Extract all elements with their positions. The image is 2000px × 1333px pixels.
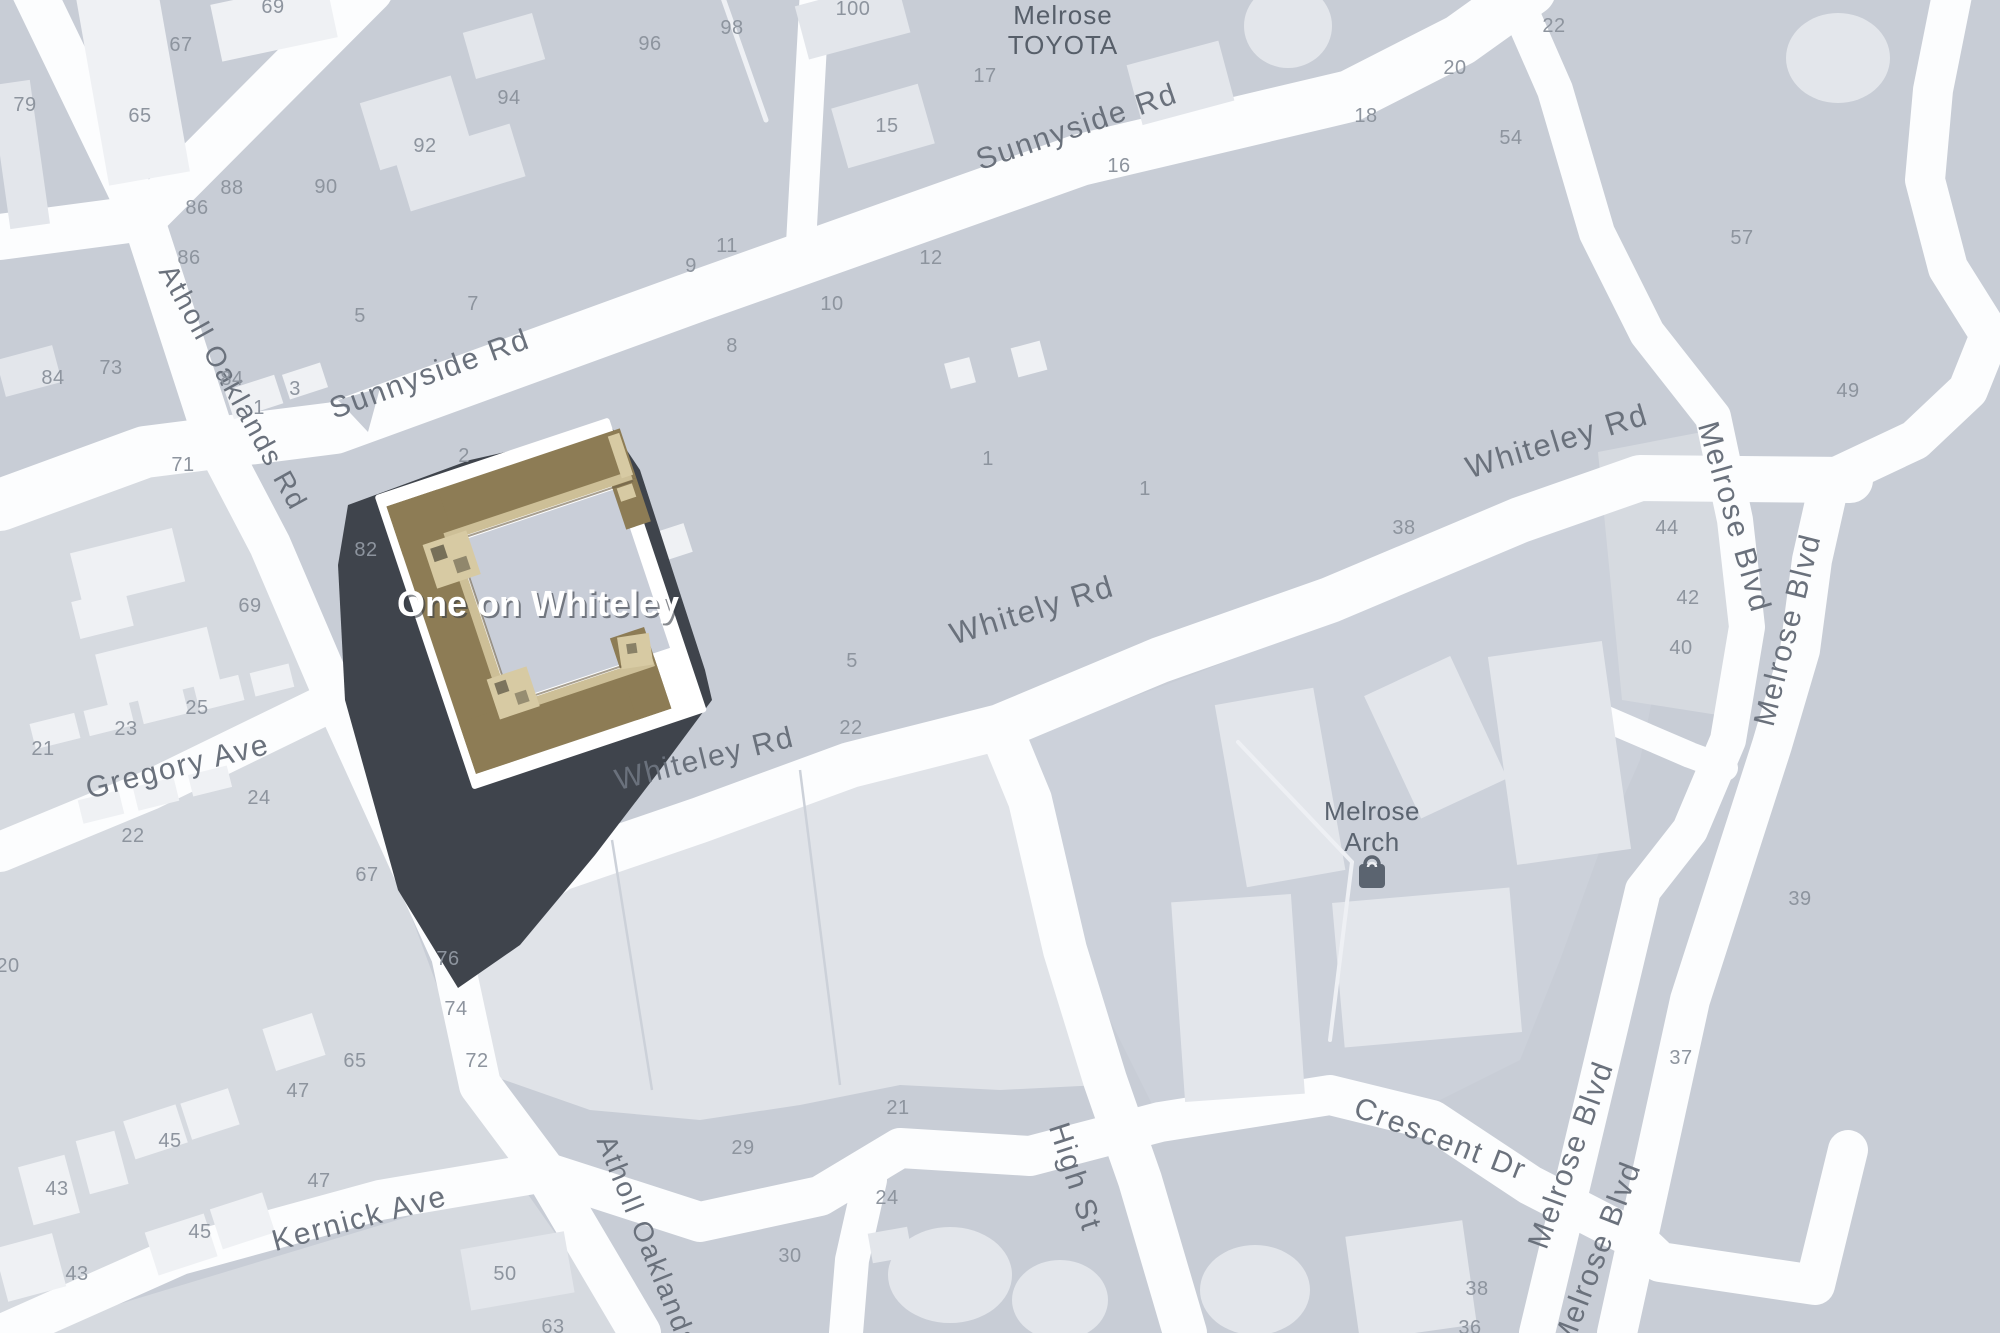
house-number-label: 67 (355, 864, 378, 886)
house-number-label: 86 (185, 197, 208, 219)
house-number-label: 43 (45, 1178, 68, 1200)
house-number-label: 43 (65, 1263, 88, 1285)
poi-line1: Melrose (1324, 796, 1420, 826)
house-number-label: 63 (541, 1316, 564, 1333)
house-number-label: 3 (289, 378, 301, 400)
house-number-label: 2 (458, 445, 470, 467)
house-number-label: 24 (247, 787, 270, 809)
house-number-label: 94 (497, 87, 520, 109)
house-number-label: 54 (1499, 127, 1522, 149)
house-number-label: 21 (886, 1097, 909, 1119)
house-number-label: 69 (261, 0, 284, 18)
house-number-label: 9 (685, 255, 697, 277)
house-number-label: 65 (128, 105, 151, 127)
house-number-label: 8 (726, 335, 738, 357)
house-number-label: 69 (238, 595, 261, 617)
house-number-label: 12 (919, 247, 942, 269)
house-number-label: 84 (220, 368, 243, 390)
house-number-label: 90 (314, 176, 337, 198)
map-canvas[interactable]: Sunnyside RdSunnyside RdAtholl Oaklands … (0, 0, 2000, 1333)
house-number-label: 71 (171, 454, 194, 476)
house-number-label: 10 (820, 293, 843, 315)
house-number-label: 45 (158, 1130, 181, 1152)
house-number-label: 1 (982, 448, 994, 470)
dealer-line1: Melrose (1013, 0, 1112, 30)
dealer-line2: TOYOTA (1008, 30, 1119, 60)
house-number-label: 7 (467, 293, 479, 315)
house-number-label: 20 (1443, 57, 1466, 79)
house-number-label: 21 (31, 738, 54, 760)
house-number-label: 1 (253, 397, 265, 419)
house-number-label: 25 (185, 697, 208, 719)
house-number-label: 82 (354, 539, 377, 561)
house-number-label: 96 (638, 33, 661, 55)
house-number-label: 23 (114, 718, 137, 740)
house-number-label: 37 (1669, 1047, 1692, 1069)
house-number-label: 72 (465, 1050, 488, 1072)
house-number-label: 65 (343, 1050, 366, 1072)
house-number-label: 67 (169, 34, 192, 56)
house-number-label: 5 (846, 650, 858, 672)
house-number-label: 16 (1107, 155, 1130, 177)
house-number-label: 45 (188, 1221, 211, 1243)
house-number-label: 38 (1465, 1278, 1488, 1300)
house-number-label: 86 (177, 247, 200, 269)
house-number-label: 39 (1788, 888, 1811, 910)
house-number-label: 18 (1354, 105, 1377, 127)
map-viewport[interactable]: Sunnyside RdSunnyside RdAtholl Oaklands … (0, 0, 2000, 1333)
house-number-label: 84 (41, 367, 64, 389)
house-number-label: 38 (1392, 517, 1415, 539)
house-number-label: 20 (0, 955, 20, 977)
house-number-label: 42 (1676, 587, 1699, 609)
house-number-label: 11 (716, 235, 738, 257)
house-number-label: 30 (778, 1245, 801, 1267)
house-number-label: 88 (220, 177, 243, 199)
house-number-label: 92 (413, 135, 436, 157)
building-label: One on Whiteley (397, 583, 679, 624)
house-number-label: 5 (354, 305, 366, 327)
house-number-label: 100 (836, 0, 871, 20)
dealer-label: Melrose TOYOTA (1008, 0, 1119, 60)
house-number-label: 24 (875, 1187, 898, 1209)
house-number-label: 47 (307, 1170, 330, 1192)
house-number-label: 40 (1669, 637, 1692, 659)
house-number-label: 50 (493, 1263, 516, 1285)
house-number-label: 17 (973, 65, 996, 87)
house-number-label: 49 (1836, 380, 1859, 402)
house-number-label: 15 (875, 115, 898, 137)
house-number-label: 98 (720, 17, 743, 39)
house-number-label: 1 (1139, 478, 1151, 500)
house-number-label: 29 (731, 1137, 754, 1159)
house-number-label: 73 (99, 357, 122, 379)
house-number-label: 76 (436, 948, 459, 970)
house-number-label: 44 (1655, 517, 1678, 539)
house-number-label: 22 (121, 825, 144, 847)
poi-line2: Arch (1344, 827, 1399, 857)
house-number-label: 22 (839, 717, 862, 739)
house-number-label: 47 (286, 1080, 309, 1102)
house-number-label: 57 (1730, 227, 1753, 249)
house-number-label: 74 (444, 998, 467, 1020)
house-number-label: 79 (13, 94, 36, 116)
house-number-label: 22 (1542, 15, 1565, 37)
house-number-label: 36 (1458, 1317, 1481, 1333)
